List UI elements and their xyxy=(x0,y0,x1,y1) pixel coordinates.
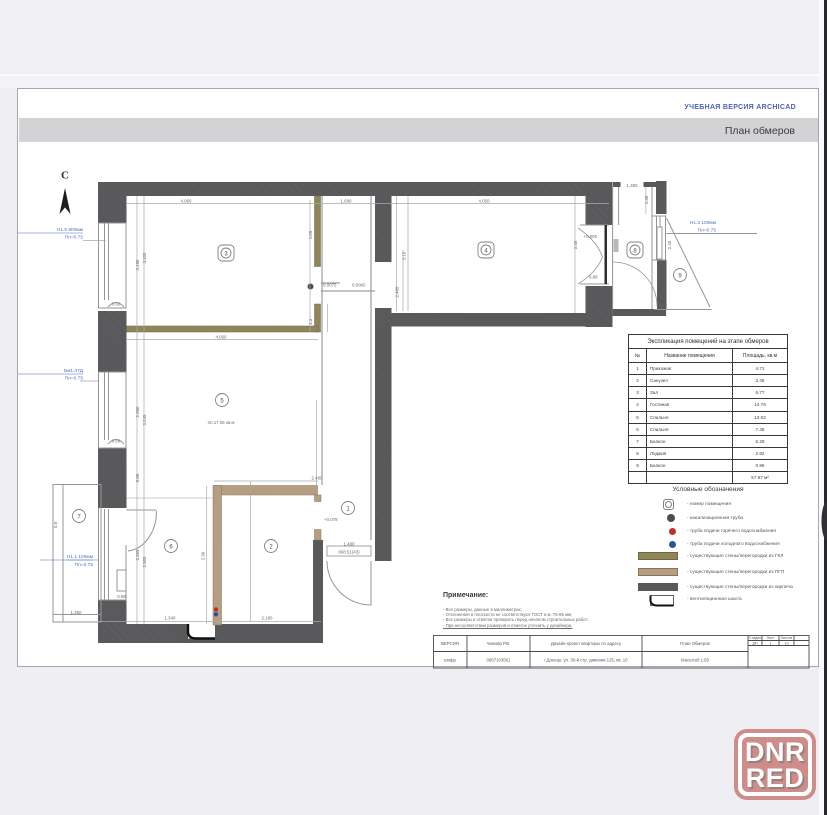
svg-text:Чижова Р.В.: Чижова Р.В. xyxy=(487,641,511,646)
svg-text:Дизайн-проект квартиры по адре: Дизайн-проект квартиры по адресу xyxy=(551,641,622,646)
svg-text:1: 1 xyxy=(769,641,771,645)
svg-text:Стадия: Стадия xyxy=(749,636,761,640)
svg-text:ВЕРСИЯ: ВЕРСИЯ xyxy=(441,641,459,646)
svg-text:г.Донецк, ул. 30-й стр. дивизи: г.Донецк, ул. 30-й стр. дивизии 125, кв.… xyxy=(544,658,628,663)
svg-text:шифр: шифр xyxy=(444,658,456,663)
svg-text:Листов: Листов xyxy=(781,636,793,640)
svg-text:Лист: Лист xyxy=(767,636,775,640)
svg-text:Масштаб 1:50: Масштаб 1:50 xyxy=(681,658,710,663)
svg-text:План Обмеров: План Обмеров xyxy=(680,641,710,646)
svg-text:10: 10 xyxy=(784,641,788,645)
svg-text:0967103561: 0967103561 xyxy=(487,658,512,663)
svg-text:ДП: ДП xyxy=(752,641,758,645)
